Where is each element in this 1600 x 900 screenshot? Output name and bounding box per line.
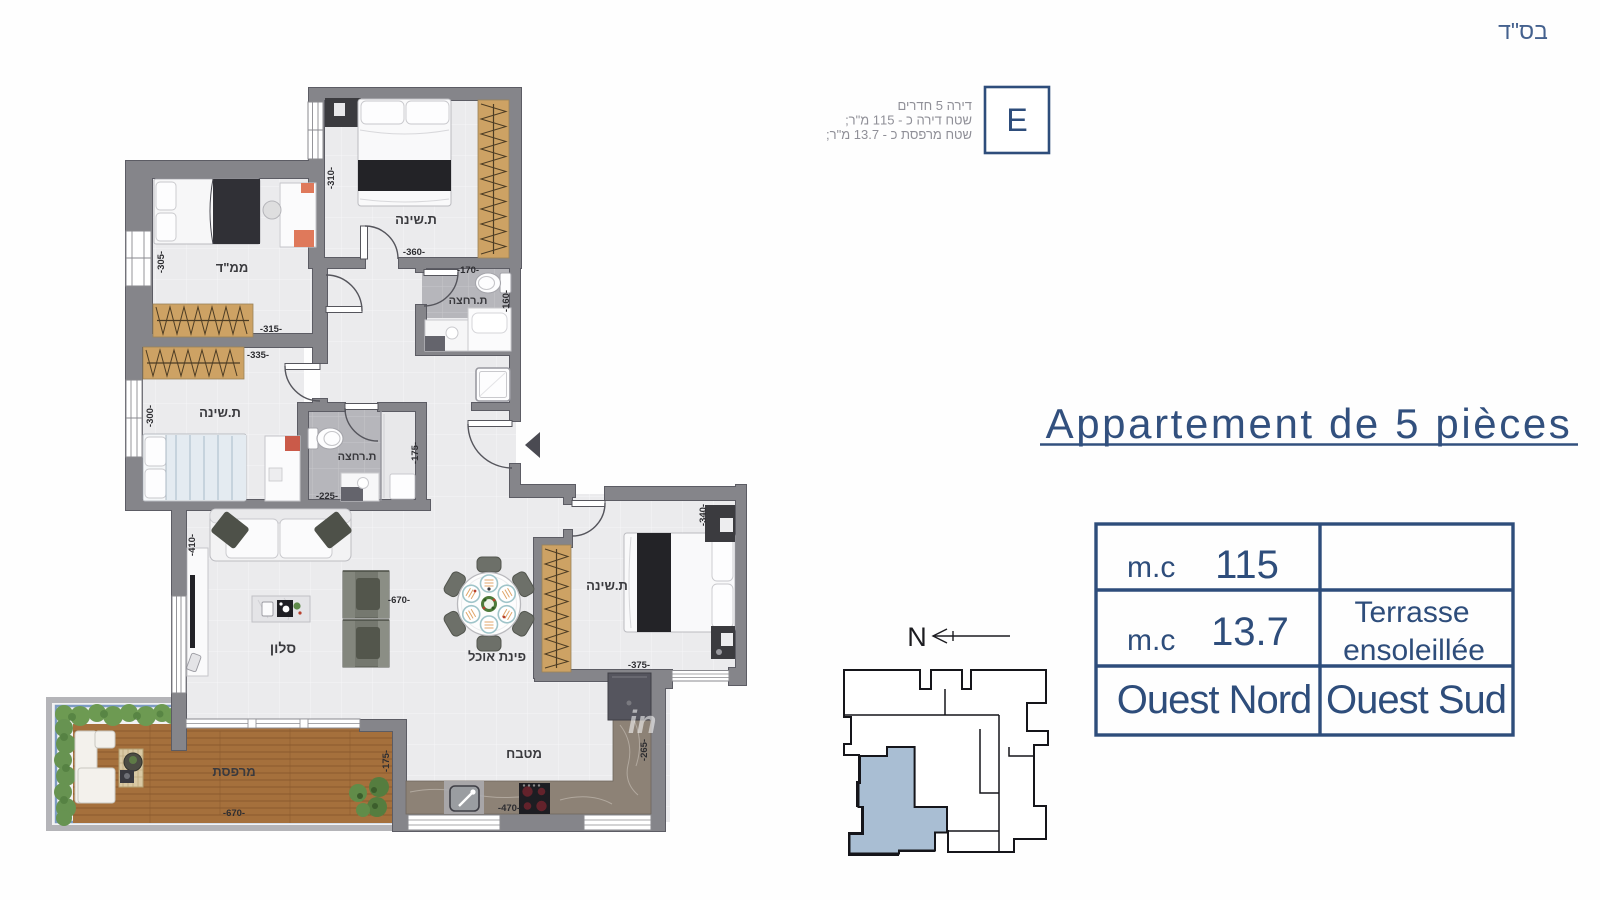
svg-text:-300-: -300- xyxy=(145,405,156,427)
svg-text:N: N xyxy=(907,622,927,652)
svg-text:שטח דירה כ - 115 מ"ר;: שטח דירה כ - 115 מ"ר; xyxy=(845,113,972,128)
svg-text:115: 115 xyxy=(1215,543,1279,587)
svg-text:Terrasse: Terrasse xyxy=(1354,596,1469,629)
svg-text:-315-: -315- xyxy=(260,324,282,335)
svg-text:-225-: -225- xyxy=(316,491,338,502)
svg-text:m.c: m.c xyxy=(1127,624,1175,657)
svg-text:ת.שינה: ת.שינה xyxy=(199,405,241,420)
svg-text:מרפסת: מרפסת xyxy=(212,764,255,779)
svg-text:Appartement de 5 pièces: Appartement de 5 pièces xyxy=(1046,400,1573,447)
svg-text:-265-: -265- xyxy=(639,739,650,761)
svg-text:E: E xyxy=(1006,102,1027,138)
svg-text:-175-: -175- xyxy=(381,750,392,772)
svg-text:Ouest Sud: Ouest Sud xyxy=(1326,678,1506,722)
svg-text:m.c: m.c xyxy=(1127,551,1175,584)
svg-text:ממ"ד: ממ"ד xyxy=(216,260,249,275)
svg-text:ensoleillée: ensoleillée xyxy=(1343,634,1485,667)
svg-text:-160-: -160- xyxy=(501,290,512,312)
svg-text:סלון: סלון xyxy=(270,640,296,656)
svg-text:Ouest Nord: Ouest Nord xyxy=(1117,678,1312,722)
svg-text:פינת אוכל: פינת אוכל xyxy=(468,649,526,664)
svg-text:ת.רחצה: ת.רחצה xyxy=(449,295,488,307)
svg-text:דירה 5 חדרים: דירה 5 חדרים xyxy=(898,98,973,113)
svg-text:-335-: -335- xyxy=(247,350,269,361)
svg-text:בס"ד: בס"ד xyxy=(1498,18,1548,44)
svg-text:-470-: -470- xyxy=(498,803,520,814)
svg-text:-360-: -360- xyxy=(403,247,425,258)
svg-text:-340-: -340- xyxy=(698,504,709,526)
svg-text:-175-: -175- xyxy=(410,442,421,464)
svg-text:-410-: -410- xyxy=(187,534,198,556)
svg-text:13.7: 13.7 xyxy=(1211,610,1289,654)
svg-text:in: in xyxy=(628,704,656,740)
svg-text:-305-: -305- xyxy=(156,251,167,273)
svg-text:-670-: -670- xyxy=(388,595,410,606)
svg-text:ת.שינה: ת.שינה xyxy=(395,212,437,227)
svg-text:-375-: -375- xyxy=(628,660,650,671)
svg-text:שטח מרפסת כ - 13.7 מ"ר;: שטח מרפסת כ - 13.7 מ"ר; xyxy=(826,127,972,142)
svg-text:מטבח: מטבח xyxy=(506,746,542,761)
svg-text:-170-: -170- xyxy=(457,265,479,276)
svg-text:ת.שינה: ת.שינה xyxy=(586,578,628,593)
svg-text:-670-: -670- xyxy=(223,808,245,819)
svg-text:-310-: -310- xyxy=(326,167,337,189)
svg-text:ת.רחצה: ת.רחצה xyxy=(338,451,377,463)
